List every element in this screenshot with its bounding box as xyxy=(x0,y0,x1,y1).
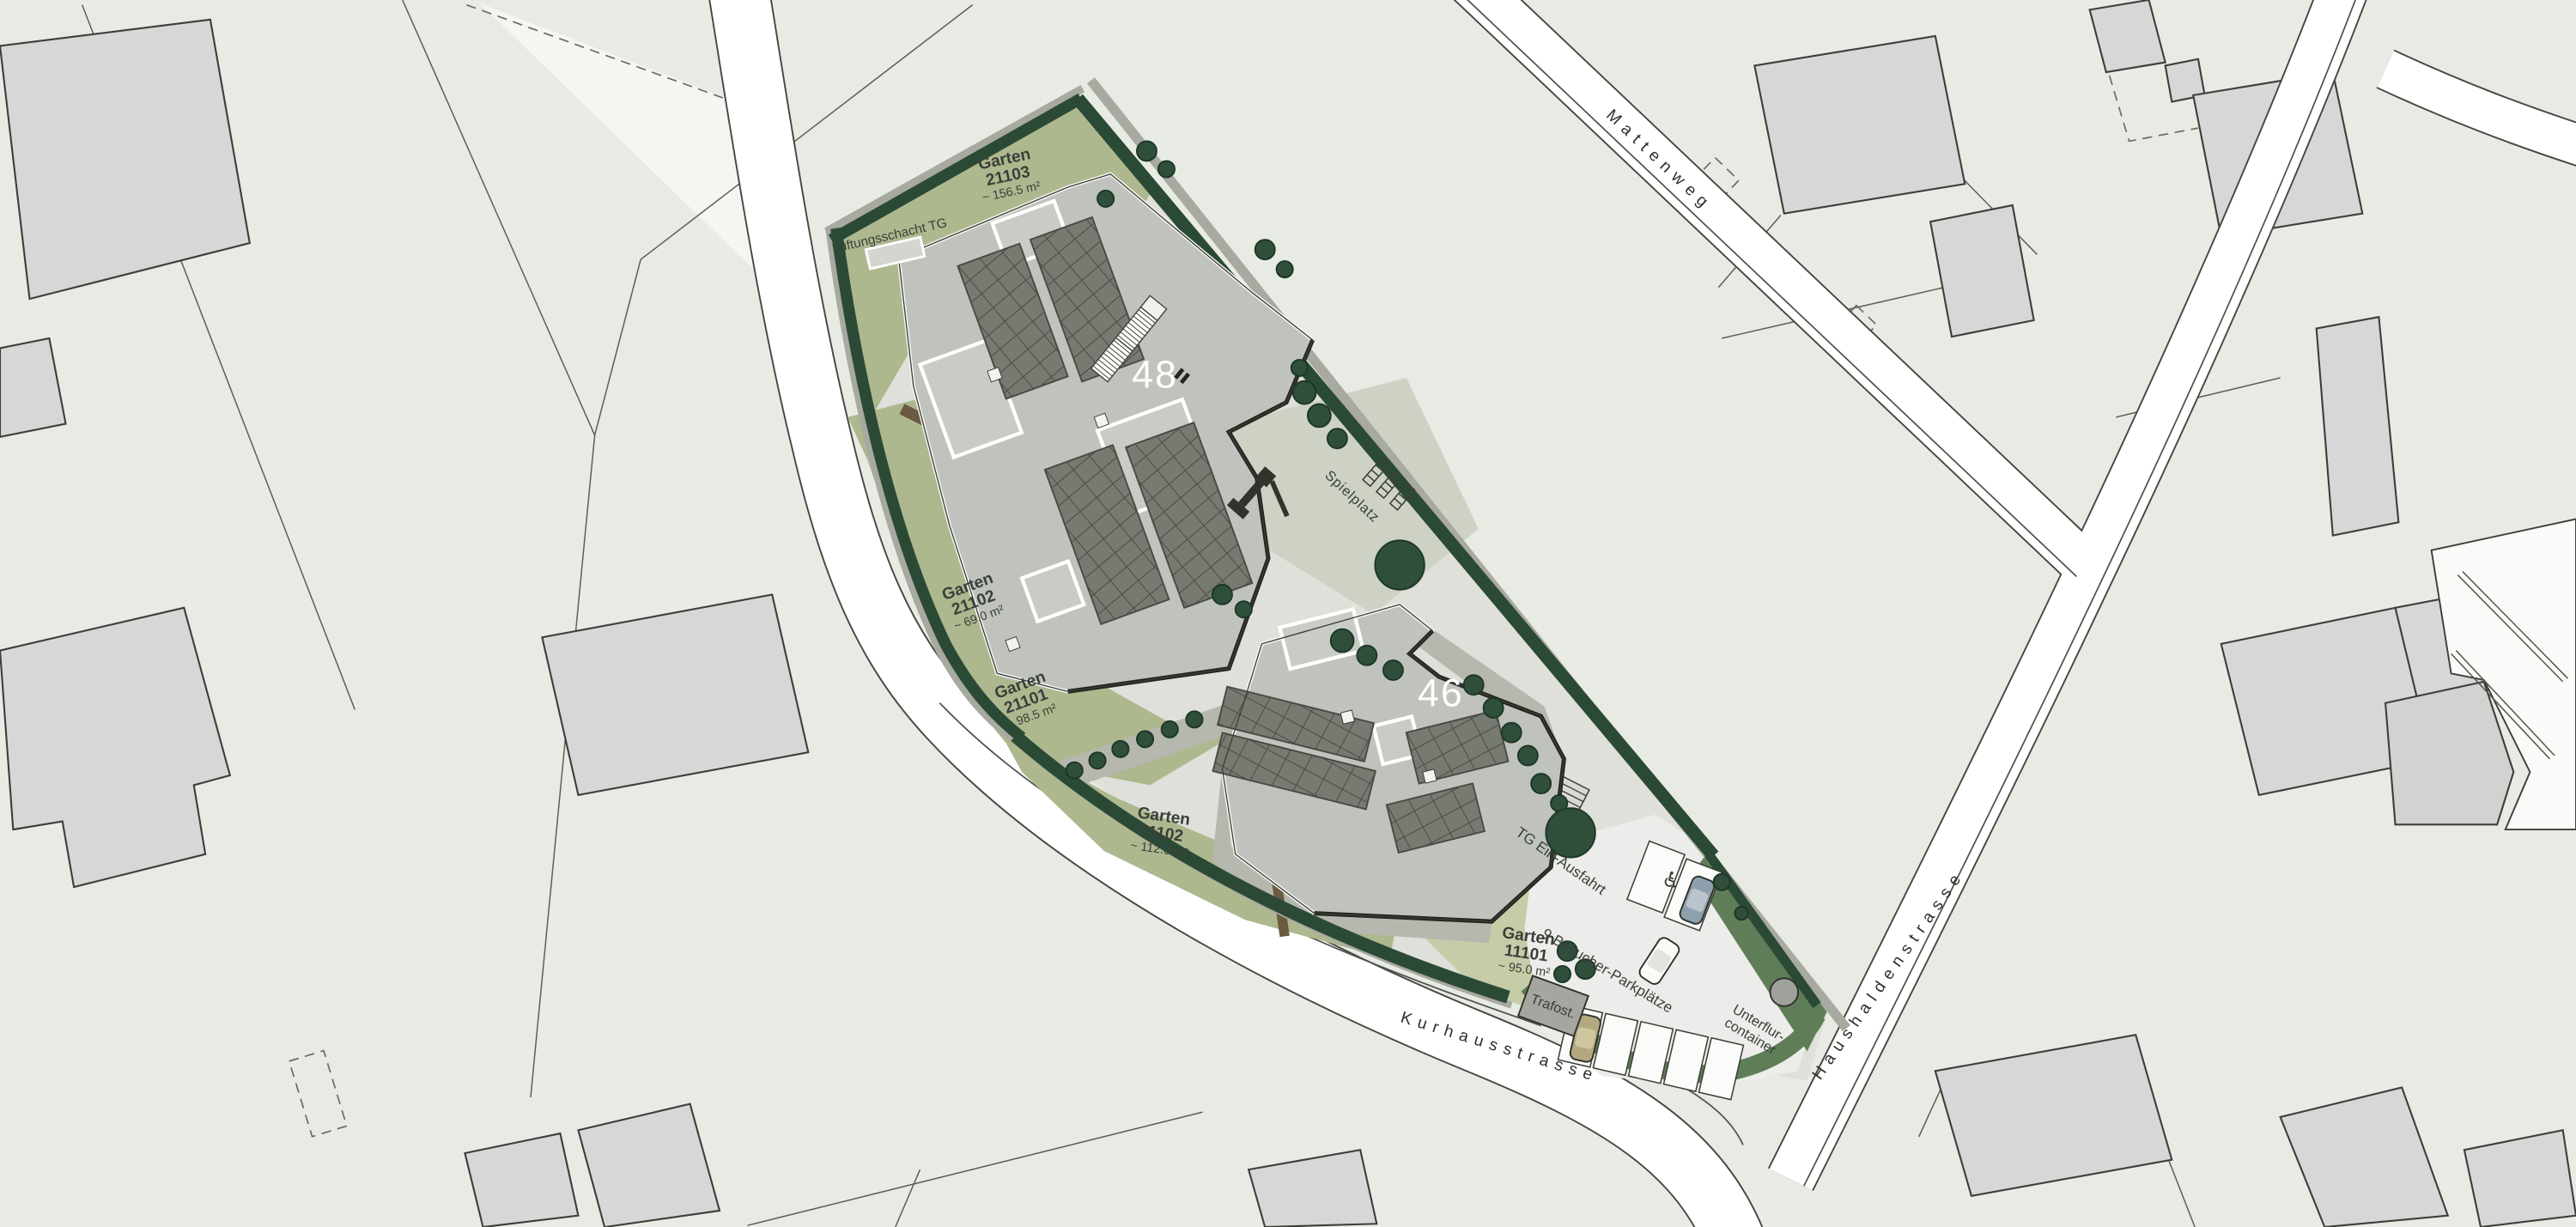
big-tree xyxy=(1375,540,1424,589)
building-48-number: 48 xyxy=(1132,352,1178,396)
unterflur-container-icon xyxy=(1771,978,1799,1006)
site-plan-svg: ♿ Trafost. xyxy=(0,0,2576,1227)
building-46-number: 46 xyxy=(1418,671,1464,715)
